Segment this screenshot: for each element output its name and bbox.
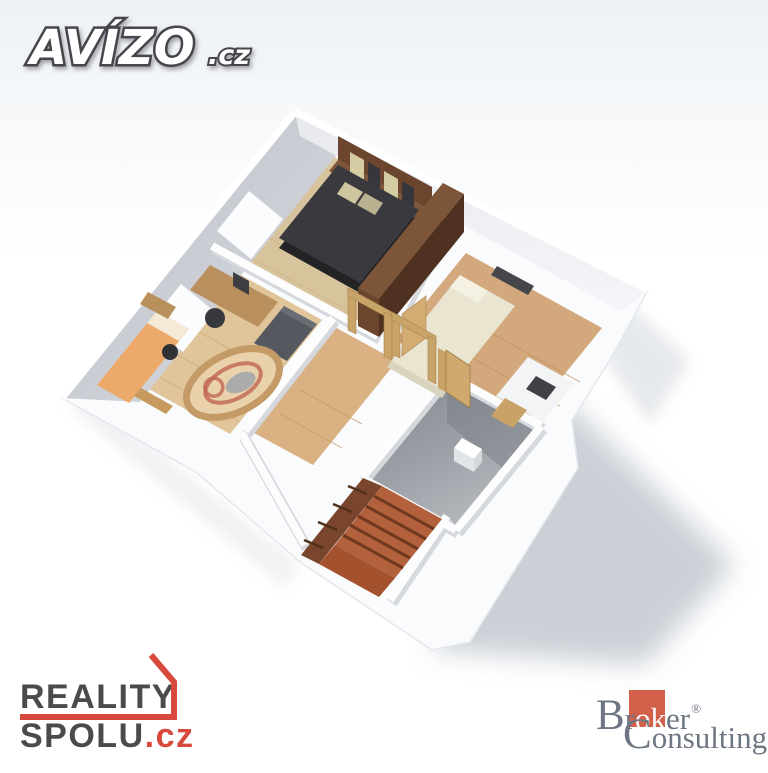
avizo-logo: AVÍZO .cz	[16, 6, 296, 84]
broker-consulting-logo: Broker® Consulting	[596, 688, 768, 758]
reality-spolu-svg: REALITY SPOLU.cz	[6, 650, 216, 760]
broker-onsulting: onsulting	[652, 720, 767, 755]
spolu-text: SPOLU.cz	[20, 717, 194, 755]
broker-cap-c: C	[623, 711, 652, 758]
reality-spolu-logo: REALITY SPOLU.cz	[6, 650, 216, 765]
reality-text: REALITY	[20, 678, 176, 716]
small-chair	[162, 344, 178, 360]
spolu-tld: .cz	[145, 717, 195, 755]
avizo-watermark: AVÍZO .cz	[16, 6, 296, 89]
broker-cap-b: B	[596, 692, 625, 739]
office-chair	[205, 308, 225, 328]
avizo-tld-text: .cz	[208, 40, 250, 71]
broker-line2: Consulting	[623, 714, 767, 759]
avizo-brand-text: AVÍZO	[26, 19, 195, 76]
